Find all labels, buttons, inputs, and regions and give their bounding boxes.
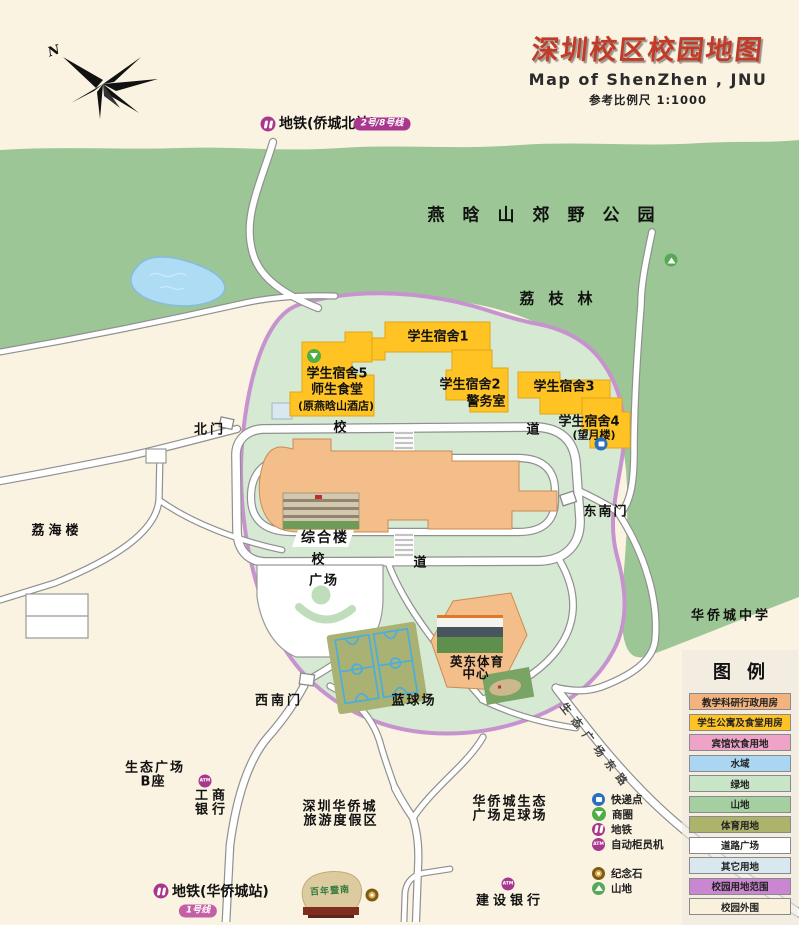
eco-plaza-label-1: 生态广场 xyxy=(125,762,185,775)
complex-label: 综合楼 xyxy=(301,531,349,545)
legend-item-dorm: 学生公寓及食堂用房 xyxy=(689,714,791,731)
stone-icon xyxy=(366,889,379,902)
sports-photo xyxy=(437,615,503,653)
eco-soccer-label-2: 广场足球场 xyxy=(472,810,547,823)
campus-road-label: 道 xyxy=(413,557,426,570)
metro-icon xyxy=(261,117,276,132)
oct-resort-label-1: 深圳华侨城 xyxy=(302,801,377,814)
legend-item-hotel: 宾馆饮食用地 xyxy=(689,734,791,751)
scale-note: 参考比例尺 1:1000 xyxy=(505,92,791,108)
lychee-grove-label: 荔枝林 xyxy=(519,292,606,307)
icbc-label-2: 银行 xyxy=(195,804,229,817)
atm-icon: ATM xyxy=(592,838,605,851)
parcel-icon xyxy=(595,438,608,451)
icbc-label-1: 工商 xyxy=(195,790,229,803)
poi-legend-group-2: 纪念石 山地 xyxy=(592,866,643,896)
legend-panel: 图例 教学科研行政用房 学生公寓及食堂用房 宾馆饮食用地 水域 绿地 山地 体育… xyxy=(682,650,798,925)
dorm1-label: 学生宿舍1 xyxy=(407,331,468,344)
legend-item-other: 其它用地 xyxy=(689,857,791,874)
basketball-label: 蓝球场 xyxy=(391,695,436,708)
sports-center-label-2: 中心 xyxy=(462,668,489,681)
poi-row-stone: 纪念石 xyxy=(592,866,643,880)
metro-north-lines-badge: 2号/8号线 xyxy=(354,118,411,131)
shop-icon xyxy=(307,349,321,363)
page-title: 深圳校区校园地图 xyxy=(503,28,793,67)
campus-road-label: 道 xyxy=(526,424,539,437)
park-name: 燕晗山郊野公园 xyxy=(428,208,673,225)
dorm3-label: 学生宿舍3 xyxy=(533,381,594,394)
campus-road-label: 校 xyxy=(333,422,346,435)
campus-road-label: 校 xyxy=(311,554,324,567)
oct-resort-label-2: 旅游度假区 xyxy=(303,815,378,828)
dorm4-note: (望月楼) xyxy=(572,430,615,441)
ccb-label: 建设银行 xyxy=(476,895,544,908)
canteen-note: (原燕晗山酒店) xyxy=(298,401,374,412)
atm-icon-text: ATM xyxy=(593,842,604,847)
legend-item-mountain: 山地 xyxy=(689,796,791,813)
atm-icon-text: ATM xyxy=(200,779,211,784)
dorm5-label: 学生宿舍5 xyxy=(306,368,367,381)
map-header: 深圳校区校园地图 Map of ShenZhen , JNU 参考比例尺 1:1… xyxy=(505,28,791,108)
eco-soccer-label-1: 华侨城生态 xyxy=(472,796,547,809)
legend-item-road: 道路广场 xyxy=(689,837,791,854)
dorm4-label: 学生宿舍4 xyxy=(558,416,619,429)
legend-item-boundary: 校园用地范围 xyxy=(689,878,791,895)
campus-map: 深圳校区校园地图 Map of ShenZhen , JNU 参考比例尺 1:1… xyxy=(0,0,799,922)
legend-item-water: 水域 xyxy=(689,755,791,772)
poi-legend-group-1: 快递点 商圈 地铁 ATM 自动柜员机 xyxy=(592,792,664,852)
atm-icon: ATM xyxy=(502,878,515,891)
stone-icon xyxy=(592,867,605,880)
parcel-icon xyxy=(592,793,605,806)
poi-row-parcel: 快递点 xyxy=(592,792,664,806)
page-title-en: Map of ShenZhen , JNU xyxy=(505,70,791,89)
map-base xyxy=(0,0,799,922)
mountain-icon xyxy=(592,882,605,895)
poi-row-atm: ATM 自动柜员机 xyxy=(592,837,664,851)
legend-item-teaching: 教学科研行政用房 xyxy=(689,693,791,710)
legend-item-outside: 校园外围 xyxy=(689,898,791,915)
poi-label: 山地 xyxy=(611,881,632,896)
metro-south-lines-badge: 1号线 xyxy=(179,905,217,918)
poi-label: 纪念石 xyxy=(611,866,643,881)
north-gate-label: 北门 xyxy=(194,424,226,437)
police-room-label: 警务室 xyxy=(466,396,505,409)
complex-photo xyxy=(283,493,359,529)
metro-icon xyxy=(154,884,169,899)
legend-item-sports: 体育用地 xyxy=(689,816,791,833)
poi-row-metro: 地铁 xyxy=(592,822,664,836)
poi-row-shop: 商圈 xyxy=(592,807,664,821)
mountain-icon xyxy=(665,254,678,267)
poi-label: 地铁 xyxy=(611,822,632,837)
other-use-blocks xyxy=(272,403,292,419)
dorm2-label: 学生宿舍2 xyxy=(439,379,500,392)
legend-item-green: 绿地 xyxy=(689,775,791,792)
atm-icon-text: ATM xyxy=(503,882,514,887)
poi-row-mountain: 山地 xyxy=(592,881,643,895)
southeast-gate-label: 东南门 xyxy=(583,506,628,519)
canteen-label: 师生食堂 xyxy=(311,384,363,397)
metro-south-label: 地铁(华侨城站) xyxy=(172,885,269,899)
southwest-gate-label: 西南门 xyxy=(255,695,303,708)
poi-label: 自动柜员机 xyxy=(611,837,664,852)
plaza-label: 广场 xyxy=(309,575,339,588)
oct-school-label: 华侨城中学 xyxy=(691,610,771,623)
legend-title: 图例 xyxy=(689,658,791,684)
metro-icon xyxy=(592,823,605,836)
southwest-gate-marker xyxy=(299,673,314,686)
atm-icon: ATM xyxy=(199,775,212,788)
poi-label: 快递点 xyxy=(611,792,643,807)
lihai-building-label: 荔海楼 xyxy=(31,525,82,538)
memorial-stone-text: 百年暨南 xyxy=(310,882,351,898)
eco-plaza-label-2: B座 xyxy=(141,776,166,789)
shop-icon xyxy=(592,807,606,821)
poi-label: 商圈 xyxy=(612,807,633,822)
